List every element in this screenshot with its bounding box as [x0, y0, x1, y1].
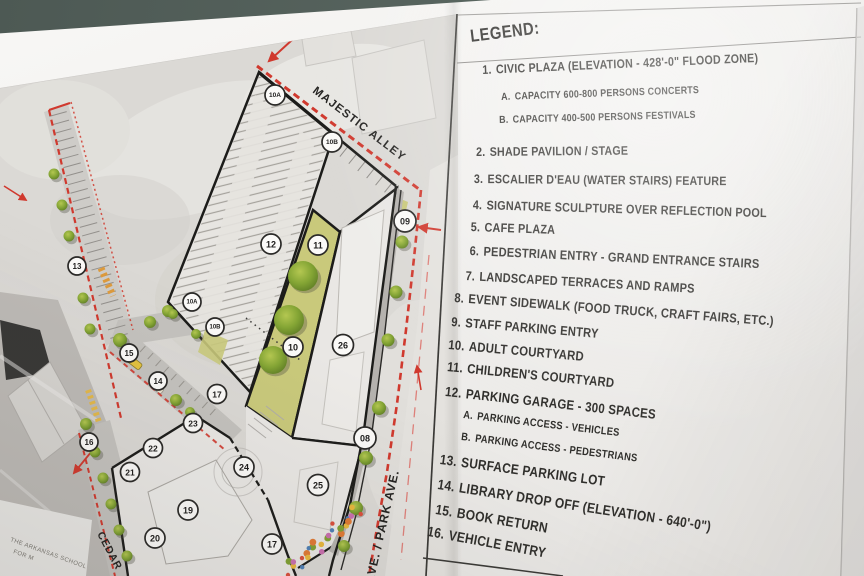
legend-item-7: 7.LANDSCAPED TERRACES AND RAMPS [465, 268, 695, 296]
legend-item-6: 6.PEDESTRIAN ENTRY - GRAND ENTRANCE STAI… [469, 243, 760, 271]
legend-item-1: 1.CIVIC PLAZA (ELEVATION - 428'-0" FLOOD… [482, 51, 759, 77]
legend-panel: LEGEND: 1.CIVIC PLAZA (ELEVATION - 428'-… [0, 0, 864, 576]
legend-item-10: 10.ADULT COURTYARD [448, 337, 585, 364]
legend-item-5: 5.CAFE PLAZA [471, 220, 556, 237]
legend-item-1b: B.CAPACITY 400-500 PERSONS FESTIVALS [499, 110, 696, 126]
legend-item-2: 2.SHADE PAVILION / STAGE [476, 144, 628, 159]
photo-of-site-plan-board: THE ARKANSAS SCHOOL FOR M [0, 0, 864, 576]
legend-title: LEGEND: [469, 18, 541, 47]
legend-item-11: 11.CHILDREN'S COURTYARD [447, 359, 615, 390]
legend-item-9: 9.STAFF PARKING ENTRY [451, 314, 599, 341]
legend-item-3: 3.ESCALIER D'EAU (WATER STAIRS) FEATURE [474, 172, 727, 188]
legend-item-4: 4.SIGNATURE SCULPTURE OVER REFLECTION PO… [473, 198, 767, 220]
legend-item-1a: A.CAPACITY 600-800 PERSONS CONCERTS [501, 85, 699, 103]
